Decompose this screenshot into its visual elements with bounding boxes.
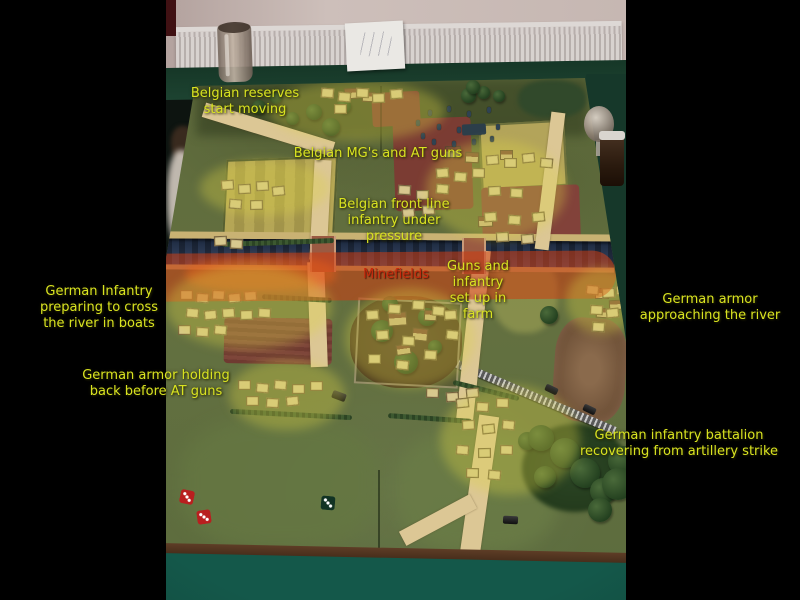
annotation-line: recovering from artillery strike xyxy=(568,444,790,460)
highlight-ellipse xyxy=(440,385,580,495)
annotation-line: infantry under xyxy=(328,213,460,229)
annotation-german-infantry-recovering: German infantry battalion recovering fro… xyxy=(568,428,790,460)
truck-model xyxy=(462,123,487,135)
annotation-line: Belgian reserves xyxy=(165,86,325,102)
unit-counter xyxy=(214,236,227,246)
green-die xyxy=(320,495,335,510)
miniature-figure xyxy=(487,107,491,113)
annotation-line: infantry xyxy=(432,275,524,291)
annotation-line: preparing to cross xyxy=(14,300,184,316)
tree xyxy=(493,90,505,102)
handwriting-marks xyxy=(359,31,392,57)
unit-counter xyxy=(398,185,411,195)
annotated-wargame-photo: { "annotations": { "belgian_reserves": {… xyxy=(0,0,800,600)
annotation-line: approaching the river xyxy=(624,308,796,324)
tree xyxy=(540,306,558,324)
annotation-belgian-mg-at-guns: Belgian MG's and AT guns xyxy=(288,146,468,162)
annotation-belgian-reserves: Belgian reserves start moving xyxy=(165,86,325,118)
handwritten-note-card xyxy=(345,21,405,72)
annotation-guns-infantry-farm: Guns and infantry set up in farm xyxy=(432,259,524,323)
unit-counter xyxy=(426,388,439,398)
annotation-german-infantry-crossing: German Infantry preparing to cross the r… xyxy=(14,284,184,332)
annotation-line: the river in boats xyxy=(14,316,184,332)
red-die xyxy=(179,489,196,506)
background-object xyxy=(166,0,176,36)
annotation-german-armor-approaching: German armor approaching the river xyxy=(624,292,796,324)
miniature-figure xyxy=(437,124,441,130)
miniature-figure xyxy=(457,127,461,133)
annotation-line: German armor holding xyxy=(50,368,262,384)
annotation-line: Belgian front line xyxy=(328,197,460,213)
paint-jar xyxy=(600,136,624,186)
miniature-figure xyxy=(467,111,471,117)
drinking-glass xyxy=(217,23,253,82)
miniature-figure xyxy=(496,124,500,130)
annotation-line: Minefields xyxy=(356,267,436,283)
highlight-ellipse xyxy=(166,265,332,349)
red-die xyxy=(196,509,212,525)
annotation-belgian-front-line: Belgian front line infantry under pressu… xyxy=(328,197,460,245)
tree xyxy=(466,80,480,94)
unit-counter xyxy=(230,239,243,249)
tree xyxy=(602,468,626,500)
meadow xyxy=(180,418,380,548)
highlight-ellipse xyxy=(200,160,330,216)
annotation-german-armor-holding: German armor holding back before AT guns xyxy=(50,368,262,400)
annotation-line: back before AT guns xyxy=(50,384,262,400)
annotation-line: Belgian MG's and AT guns xyxy=(288,146,468,162)
annotation-line: German infantry battalion xyxy=(568,428,790,444)
annotation-line: farm xyxy=(432,307,524,323)
annotation-line: start moving xyxy=(165,102,325,118)
annotation-line: pressure xyxy=(328,229,460,245)
annotation-minefields: Minefields xyxy=(356,267,436,283)
annotation-line: German armor xyxy=(624,292,796,308)
annotation-line: German Infantry xyxy=(14,284,184,300)
annotation-line: set up in xyxy=(432,291,524,307)
vehicle-model xyxy=(503,516,518,525)
miniature-figure xyxy=(432,139,436,145)
annotation-line: Guns and xyxy=(432,259,524,275)
miniature-figure xyxy=(447,106,451,112)
tree xyxy=(588,498,612,522)
miniature-figure xyxy=(421,133,425,139)
